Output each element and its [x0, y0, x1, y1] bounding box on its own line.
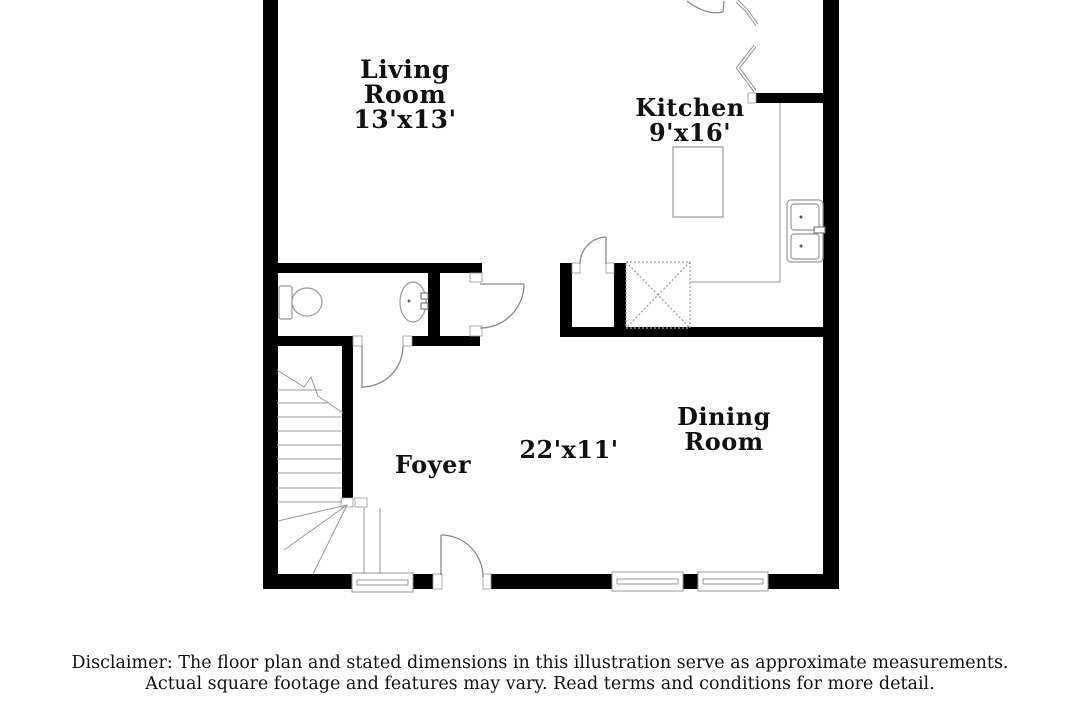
- window-dining-left: [612, 572, 683, 591]
- kitchen-sink-icon: [787, 200, 825, 262]
- jamb: [403, 336, 412, 346]
- wall-bathroom-top: [277, 263, 482, 273]
- bathroom-door-opening: [362, 336, 403, 346]
- wall-stair-right: [342, 346, 353, 505]
- toilet-icon: [279, 286, 322, 319]
- stair-break-line: [277, 370, 343, 413]
- living-room-label: Living Room 13'x13': [353, 57, 456, 132]
- dining-room-label: Dining Room: [677, 404, 771, 454]
- upper-door-arc: [687, 1, 724, 13]
- jamb: [483, 574, 491, 589]
- entry-door: [441, 535, 483, 577]
- bifold-door-icon: [738, 46, 755, 91]
- foyer-label: Foyer: [395, 452, 471, 477]
- closet-door: [480, 284, 524, 328]
- washer-dryer-area-icon: [626, 262, 690, 328]
- jamb: [748, 93, 756, 103]
- bifold-doors: [737, 1, 757, 91]
- kitchen-label: Kitchen 9'x16': [635, 95, 744, 145]
- staircase: [277, 370, 380, 574]
- hall-dimensions-label: 22'x11': [519, 437, 618, 462]
- wall-dining-top: [560, 327, 839, 337]
- entry-door-opening: [442, 574, 483, 589]
- stair-winder: [284, 505, 347, 550]
- bathroom-sink-icon: [400, 282, 428, 322]
- floor-plan-drawing: [0, 0, 1080, 720]
- jamb: [572, 263, 580, 273]
- wall-pantry-left: [560, 263, 572, 327]
- wall-bathroom-right: [428, 273, 440, 336]
- jamb: [433, 574, 442, 589]
- window-dining-right: [698, 572, 768, 591]
- disclaimer-text: Disclaimer: The floor plan and stated di…: [0, 653, 1080, 695]
- wall-right: [823, 0, 839, 589]
- jamb: [355, 498, 367, 507]
- jamb: [353, 336, 362, 346]
- floor-plan-page: Living Room 13'x13' Kitchen 9'x16' Foyer…: [0, 0, 1080, 720]
- pantry-door: [580, 237, 606, 264]
- bathroom-door: [362, 346, 403, 388]
- jamb: [606, 263, 614, 273]
- jamb: [470, 273, 482, 282]
- stair-winder: [313, 505, 347, 574]
- window-foyer: [352, 573, 413, 592]
- wall-pantry-right: [614, 263, 626, 327]
- wall-left: [263, 0, 278, 589]
- kitchen-island-icon: [673, 147, 723, 217]
- wall-kitchen-top: [752, 93, 823, 103]
